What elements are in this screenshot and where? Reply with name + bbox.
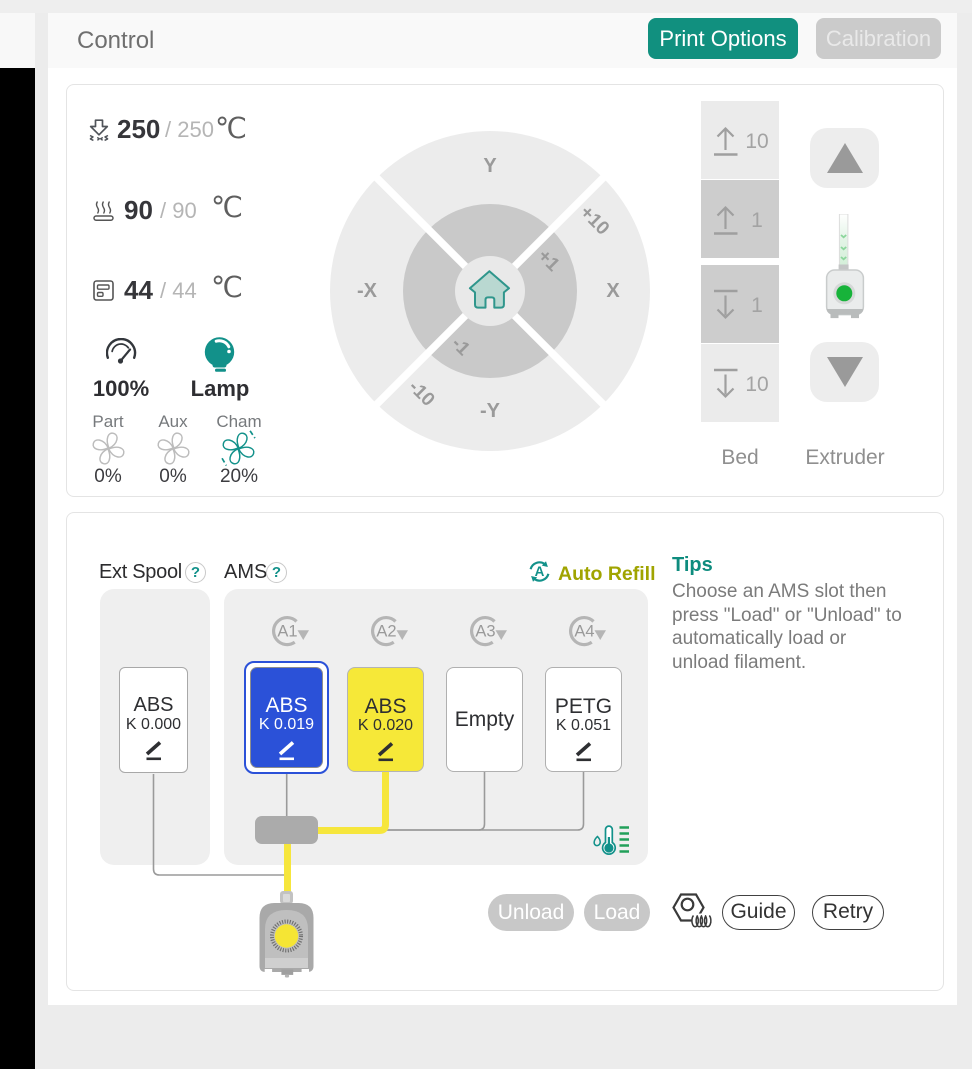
svg-text:A2: A2 [376,623,396,641]
svg-text:A1: A1 [277,623,297,641]
svg-text:A3: A3 [475,623,495,641]
svg-text:A4: A4 [574,623,594,641]
svg-text:A: A [535,564,545,579]
